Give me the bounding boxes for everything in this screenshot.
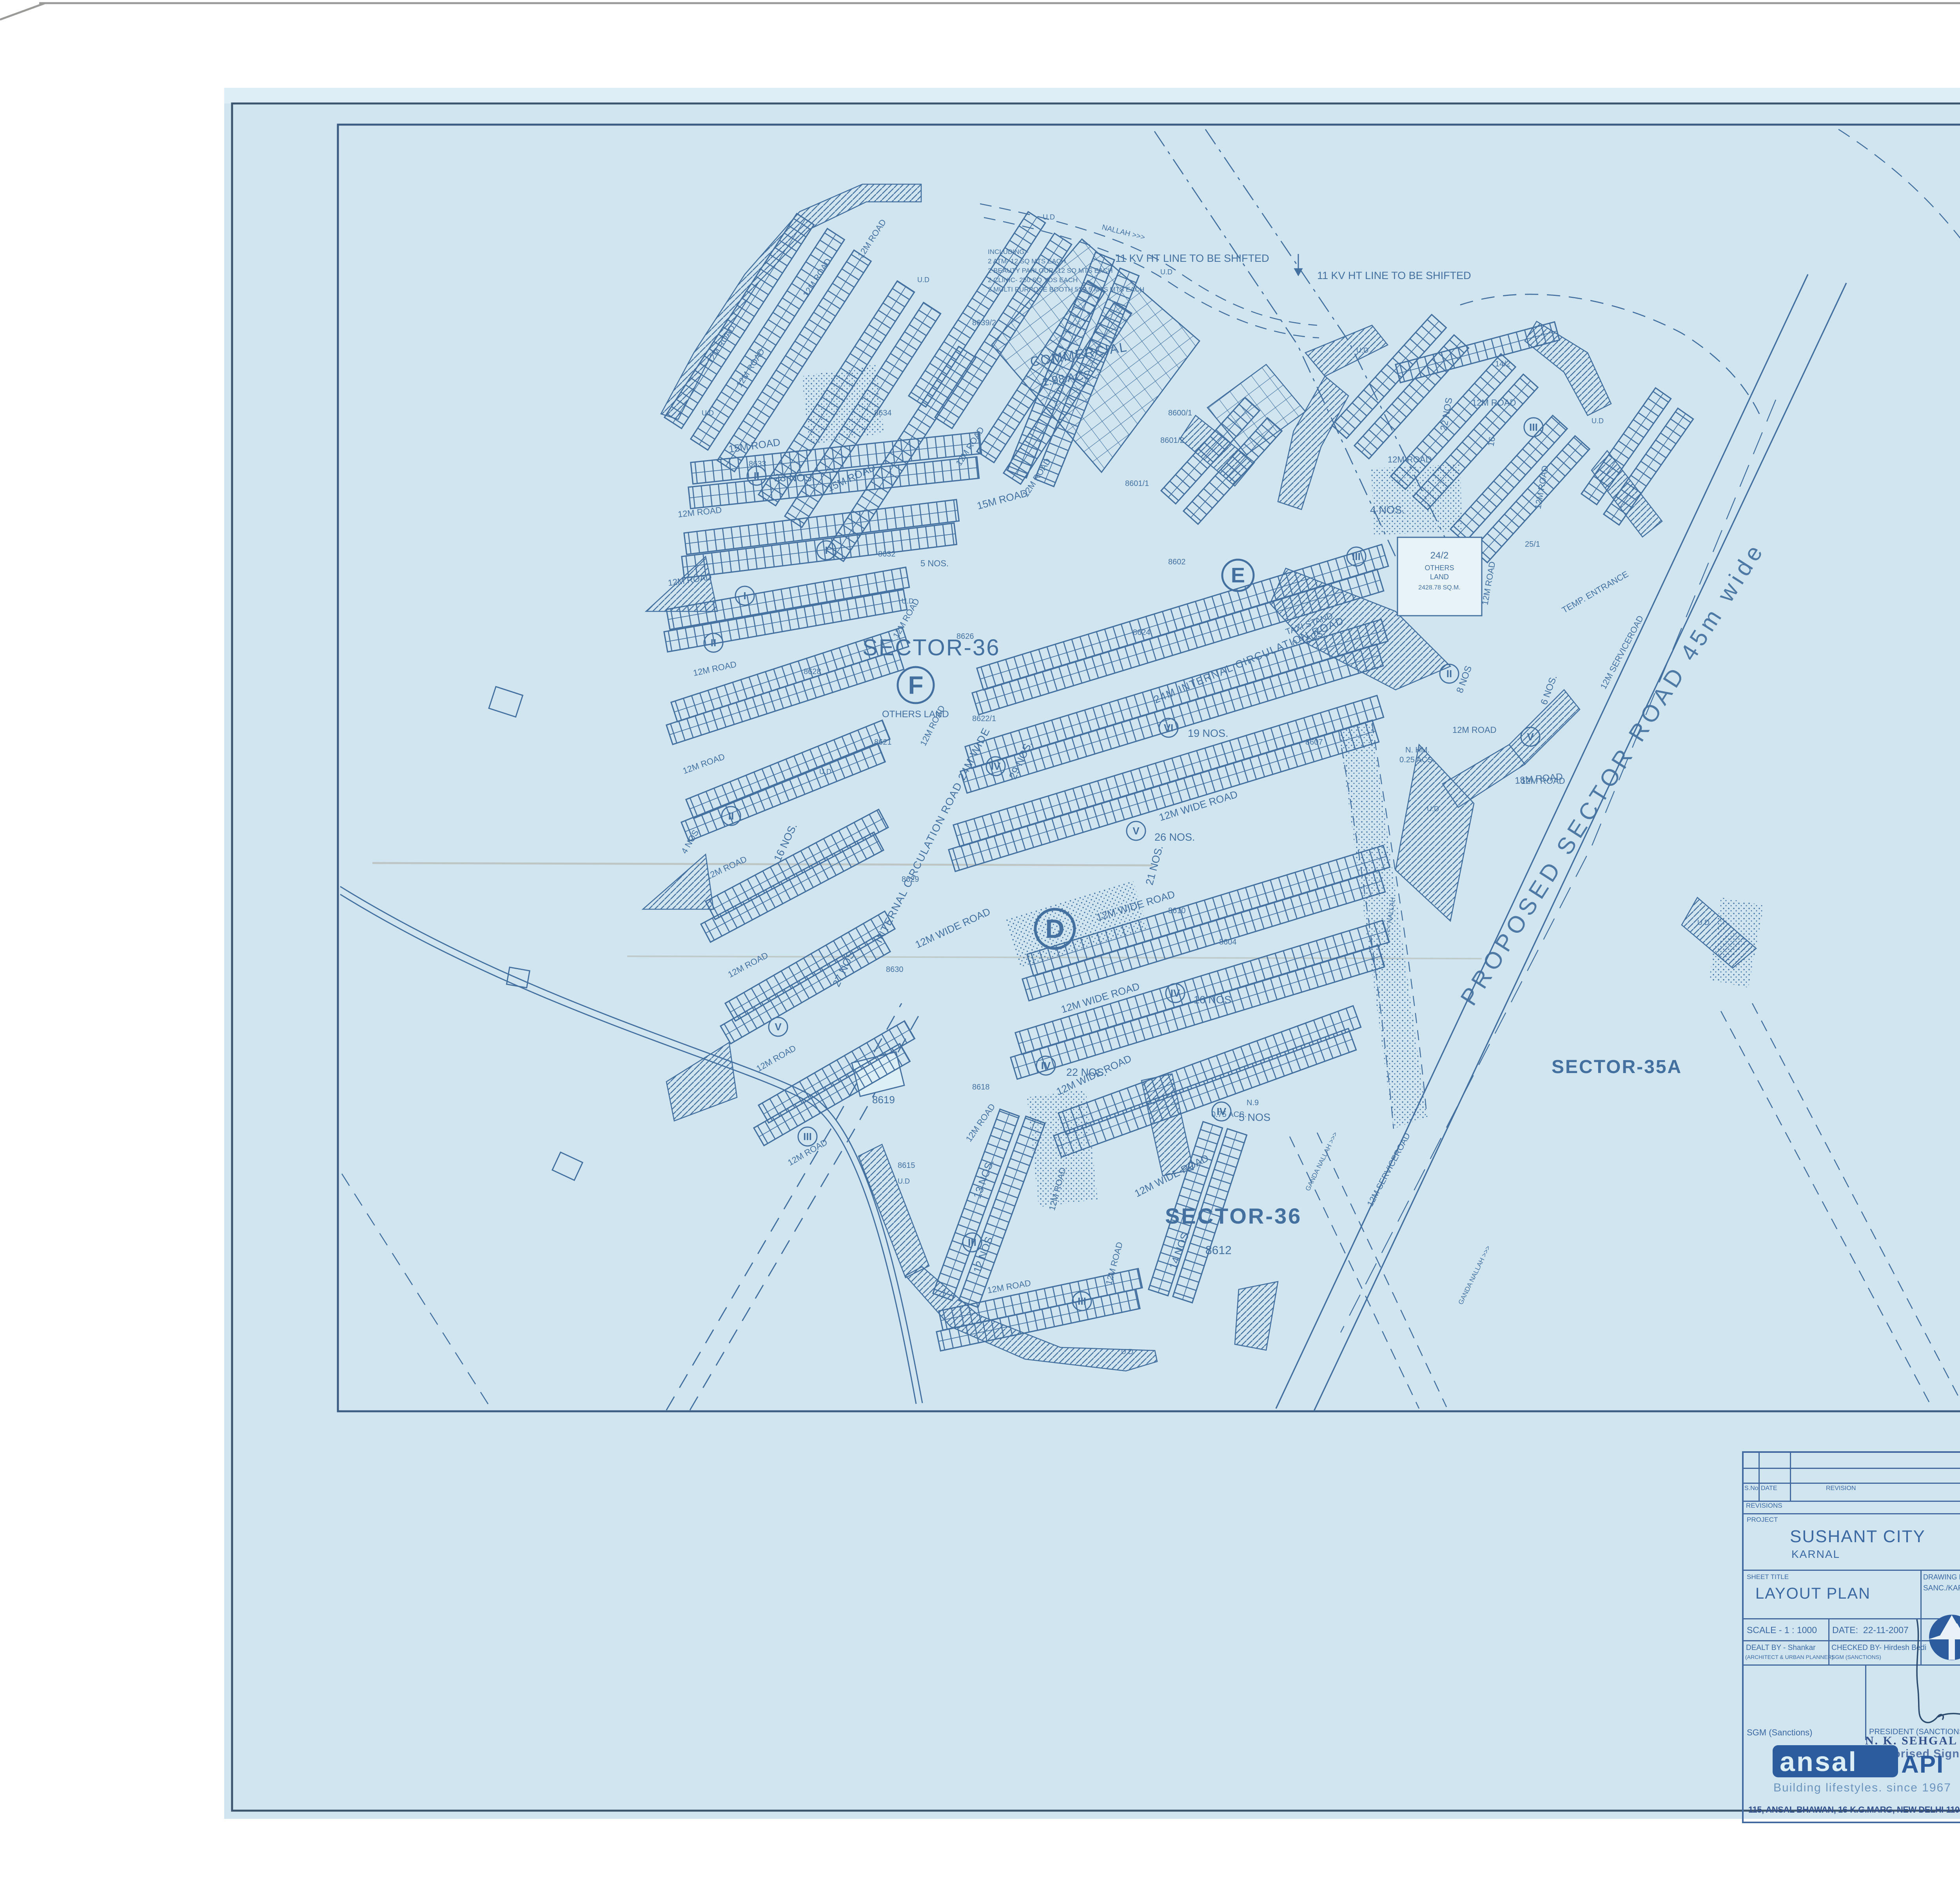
svg-text:SECTOR-36: SECTOR-36 (862, 635, 1000, 660)
svg-text:8618: 8618 (972, 1083, 990, 1091)
svg-text:ansal: ansal (1780, 1746, 1858, 1777)
svg-text:V: V (1527, 731, 1534, 743)
svg-text:8612: 8612 (1205, 1244, 1232, 1257)
svg-text:12M ROAD: 12M ROAD (1388, 455, 1432, 464)
svg-text:VI: VI (1164, 722, 1174, 734)
svg-text:8629: 8629 (902, 875, 919, 884)
svg-text:U.D: U.D (1356, 346, 1368, 354)
svg-text:II: II (728, 810, 734, 822)
svg-text:2 BEAUTY PARLOUR- 12 SQ MTS EA: 2 BEAUTY PARLOUR- 12 SQ MTS EACH (988, 267, 1113, 274)
svg-text:2 MULTI PURPOSE BOOTH 5X3.5 MT: 2 MULTI PURPOSE BOOTH 5X3.5 MTS MTS EACH (988, 286, 1144, 293)
svg-text:8601/1: 8601/1 (1125, 479, 1149, 488)
svg-text:16 NOS.: 16 NOS. (1194, 994, 1234, 1006)
svg-text:4 NOS.: 4 NOS. (1370, 504, 1405, 516)
svg-text:II: II (754, 470, 759, 482)
svg-text:III: III (1529, 421, 1538, 433)
svg-text:U.D: U.D (898, 1177, 910, 1185)
svg-text:U.D: U.D (902, 597, 914, 605)
svg-text:I: I (825, 544, 828, 556)
svg-text:SECTOR-35A: SECTOR-35A (1552, 1057, 1682, 1077)
svg-text:8634: 8634 (874, 409, 892, 417)
svg-text:U.D: U.D (1121, 1348, 1133, 1356)
svg-text:E: E (1231, 564, 1245, 587)
svg-text:LAND: LAND (1430, 573, 1449, 581)
svg-text:8622/1: 8622/1 (972, 714, 996, 723)
svg-text:14/2: 14/2 (1495, 360, 1510, 368)
svg-text:III: III (1352, 551, 1361, 562)
svg-text:12M ROAD: 12M ROAD (1472, 398, 1516, 408)
svg-text:8602: 8602 (1168, 558, 1186, 566)
svg-text:INCLUDING:-: INCLUDING:- (988, 248, 1029, 256)
svg-text:16: 16 (1486, 436, 1497, 447)
svg-text:0.75 ACS.: 0.75 ACS. (1211, 1110, 1247, 1119)
svg-text:11 KV HT LINE TO BE SHIFTED: 11 KV HT LINE TO BE SHIFTED (1115, 252, 1269, 264)
svg-text:OTHERS: OTHERS (1425, 564, 1454, 572)
svg-text:II: II (711, 637, 716, 649)
svg-text:I: I (743, 590, 746, 602)
svg-text:8601/2: 8601/2 (1160, 436, 1184, 445)
svg-text:0.25 ACS.: 0.25 ACS. (1399, 756, 1435, 764)
svg-text:25/1: 25/1 (1525, 540, 1540, 549)
svg-text:V: V (1132, 825, 1140, 837)
svg-text:19 NOS.: 19 NOS. (1188, 727, 1229, 739)
svg-text:U.D: U.D (1592, 417, 1604, 425)
svg-text:8626: 8626 (956, 632, 974, 641)
svg-text:8630: 8630 (886, 965, 904, 974)
svg-text:24/2: 24/2 (1430, 550, 1449, 561)
svg-text:U.D: U.D (917, 276, 929, 284)
svg-text:U.D: U.D (1427, 805, 1439, 813)
svg-text:8632: 8632 (878, 550, 896, 558)
svg-text:V: V (775, 1021, 782, 1033)
svg-text:U.D: U.D (1160, 268, 1172, 276)
svg-text:IV: IV (1171, 987, 1180, 999)
svg-text:N. HM.: N. HM. (1405, 746, 1430, 754)
svg-text:2428.78 SQ.M.: 2428.78 SQ.M. (1418, 584, 1461, 591)
svg-text:IV: IV (1041, 1060, 1051, 1071)
svg-text:8619: 8619 (872, 1094, 895, 1106)
svg-text:8607: 8607 (1305, 738, 1323, 747)
svg-text:N.9: N.9 (1247, 1099, 1259, 1107)
svg-text:8610: 8610 (1168, 906, 1186, 915)
svg-text:8633: 8633 (749, 460, 766, 468)
svg-text:F: F (908, 671, 923, 699)
svg-text:U.D: U.D (1043, 213, 1055, 221)
svg-text:IV: IV (991, 760, 1001, 772)
svg-text:2 CLINIC- 250 SQ YDS EACH: 2 CLINIC- 250 SQ YDS EACH (988, 276, 1078, 284)
svg-text:26 NOS.: 26 NOS. (1154, 831, 1195, 843)
svg-text:2 ATM- 12 SQ MTS EACH: 2 ATM- 12 SQ MTS EACH (988, 257, 1066, 265)
svg-text:API: API (1901, 1751, 1944, 1778)
svg-text:III: III (803, 1131, 812, 1142)
svg-text:5 NOS.: 5 NOS. (920, 558, 949, 568)
svg-text:12M ROAD: 12M ROAD (1452, 725, 1496, 735)
svg-text:8628: 8628 (804, 667, 821, 676)
svg-text:SECTOR-36: SECTOR-36 (1165, 1204, 1302, 1228)
svg-text:D: D (1045, 914, 1064, 944)
svg-text:23 NOS.: 23 NOS. (774, 472, 815, 484)
svg-text:8639/2: 8639/2 (972, 319, 996, 327)
svg-text:8624: 8624 (1133, 628, 1151, 637)
svg-text:8621: 8621 (874, 738, 892, 747)
svg-text:U.D: U.D (819, 768, 831, 776)
svg-text:II: II (1446, 668, 1452, 680)
svg-text:11 KV HT LINE TO BE SHIFTED: 11 KV HT LINE TO BE SHIFTED (1317, 270, 1471, 281)
svg-text:U.D: U.D (1697, 919, 1710, 926)
svg-text:8615: 8615 (898, 1161, 915, 1170)
svg-text:U.D: U.D (702, 409, 714, 417)
svg-text:8600/1: 8600/1 (1168, 409, 1192, 417)
svg-text:III: III (968, 1236, 976, 1248)
svg-text:8604: 8604 (1219, 938, 1237, 946)
svg-text:III: III (1078, 1295, 1086, 1307)
